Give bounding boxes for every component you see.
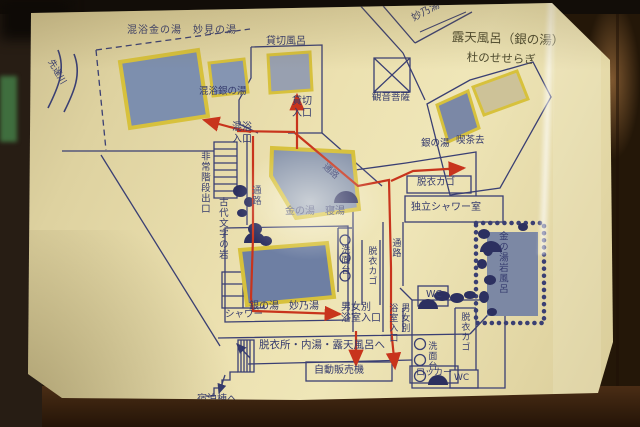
- pool-mixed-gin: [209, 59, 248, 96]
- door-fan: [428, 375, 448, 385]
- pool-gin-taenoyu: [240, 243, 334, 305]
- door-fan: [244, 232, 266, 243]
- photo-of-handdrawn-onsen-map: 混浴金の湯 妙見の湯 混浴銀の湯 先達川 貸切風呂 貸切入口 妙乃湯へ 露天風呂…: [0, 0, 640, 427]
- pool-kin-neyu: [271, 148, 359, 218]
- table-plank-seam: [616, 0, 619, 427]
- pool-open-air-1: [437, 91, 479, 142]
- pool-open-air-2: [473, 71, 528, 115]
- map-drawing: [0, 0, 640, 427]
- green-object-left-edge: [0, 76, 17, 142]
- pool-mixed-kin: [120, 50, 208, 128]
- map-card: 混浴金の湯 妙見の湯 混浴銀の湯 先達川 貸切風呂 貸切入口 妙乃湯へ 露天風呂…: [0, 0, 640, 427]
- red-route-lines: [204, 95, 464, 368]
- pool-private-bath: [268, 52, 312, 93]
